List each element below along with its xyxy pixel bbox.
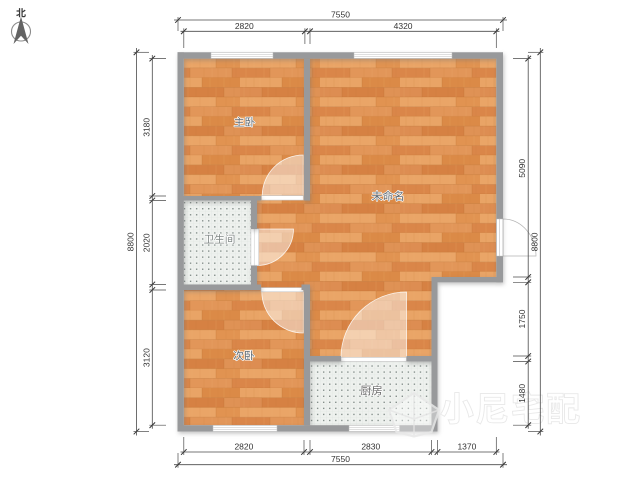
svg-text:7550: 7550 bbox=[331, 454, 350, 464]
svg-text:5090: 5090 bbox=[517, 159, 527, 178]
svg-text:1750: 1750 bbox=[517, 309, 527, 328]
svg-text:2830: 2830 bbox=[361, 441, 380, 451]
svg-text:3180: 3180 bbox=[142, 118, 152, 137]
svg-text:3120: 3120 bbox=[142, 348, 152, 367]
svg-text:2820: 2820 bbox=[234, 441, 253, 451]
svg-text:1370: 1370 bbox=[457, 441, 476, 451]
svg-text:8800: 8800 bbox=[126, 232, 136, 251]
svg-text:2820: 2820 bbox=[235, 21, 254, 31]
svg-text:8800: 8800 bbox=[529, 232, 539, 251]
svg-text:2020: 2020 bbox=[142, 233, 152, 252]
svg-text:1480: 1480 bbox=[517, 384, 527, 403]
svg-text:4320: 4320 bbox=[394, 21, 413, 31]
svg-text:7550: 7550 bbox=[331, 10, 350, 20]
